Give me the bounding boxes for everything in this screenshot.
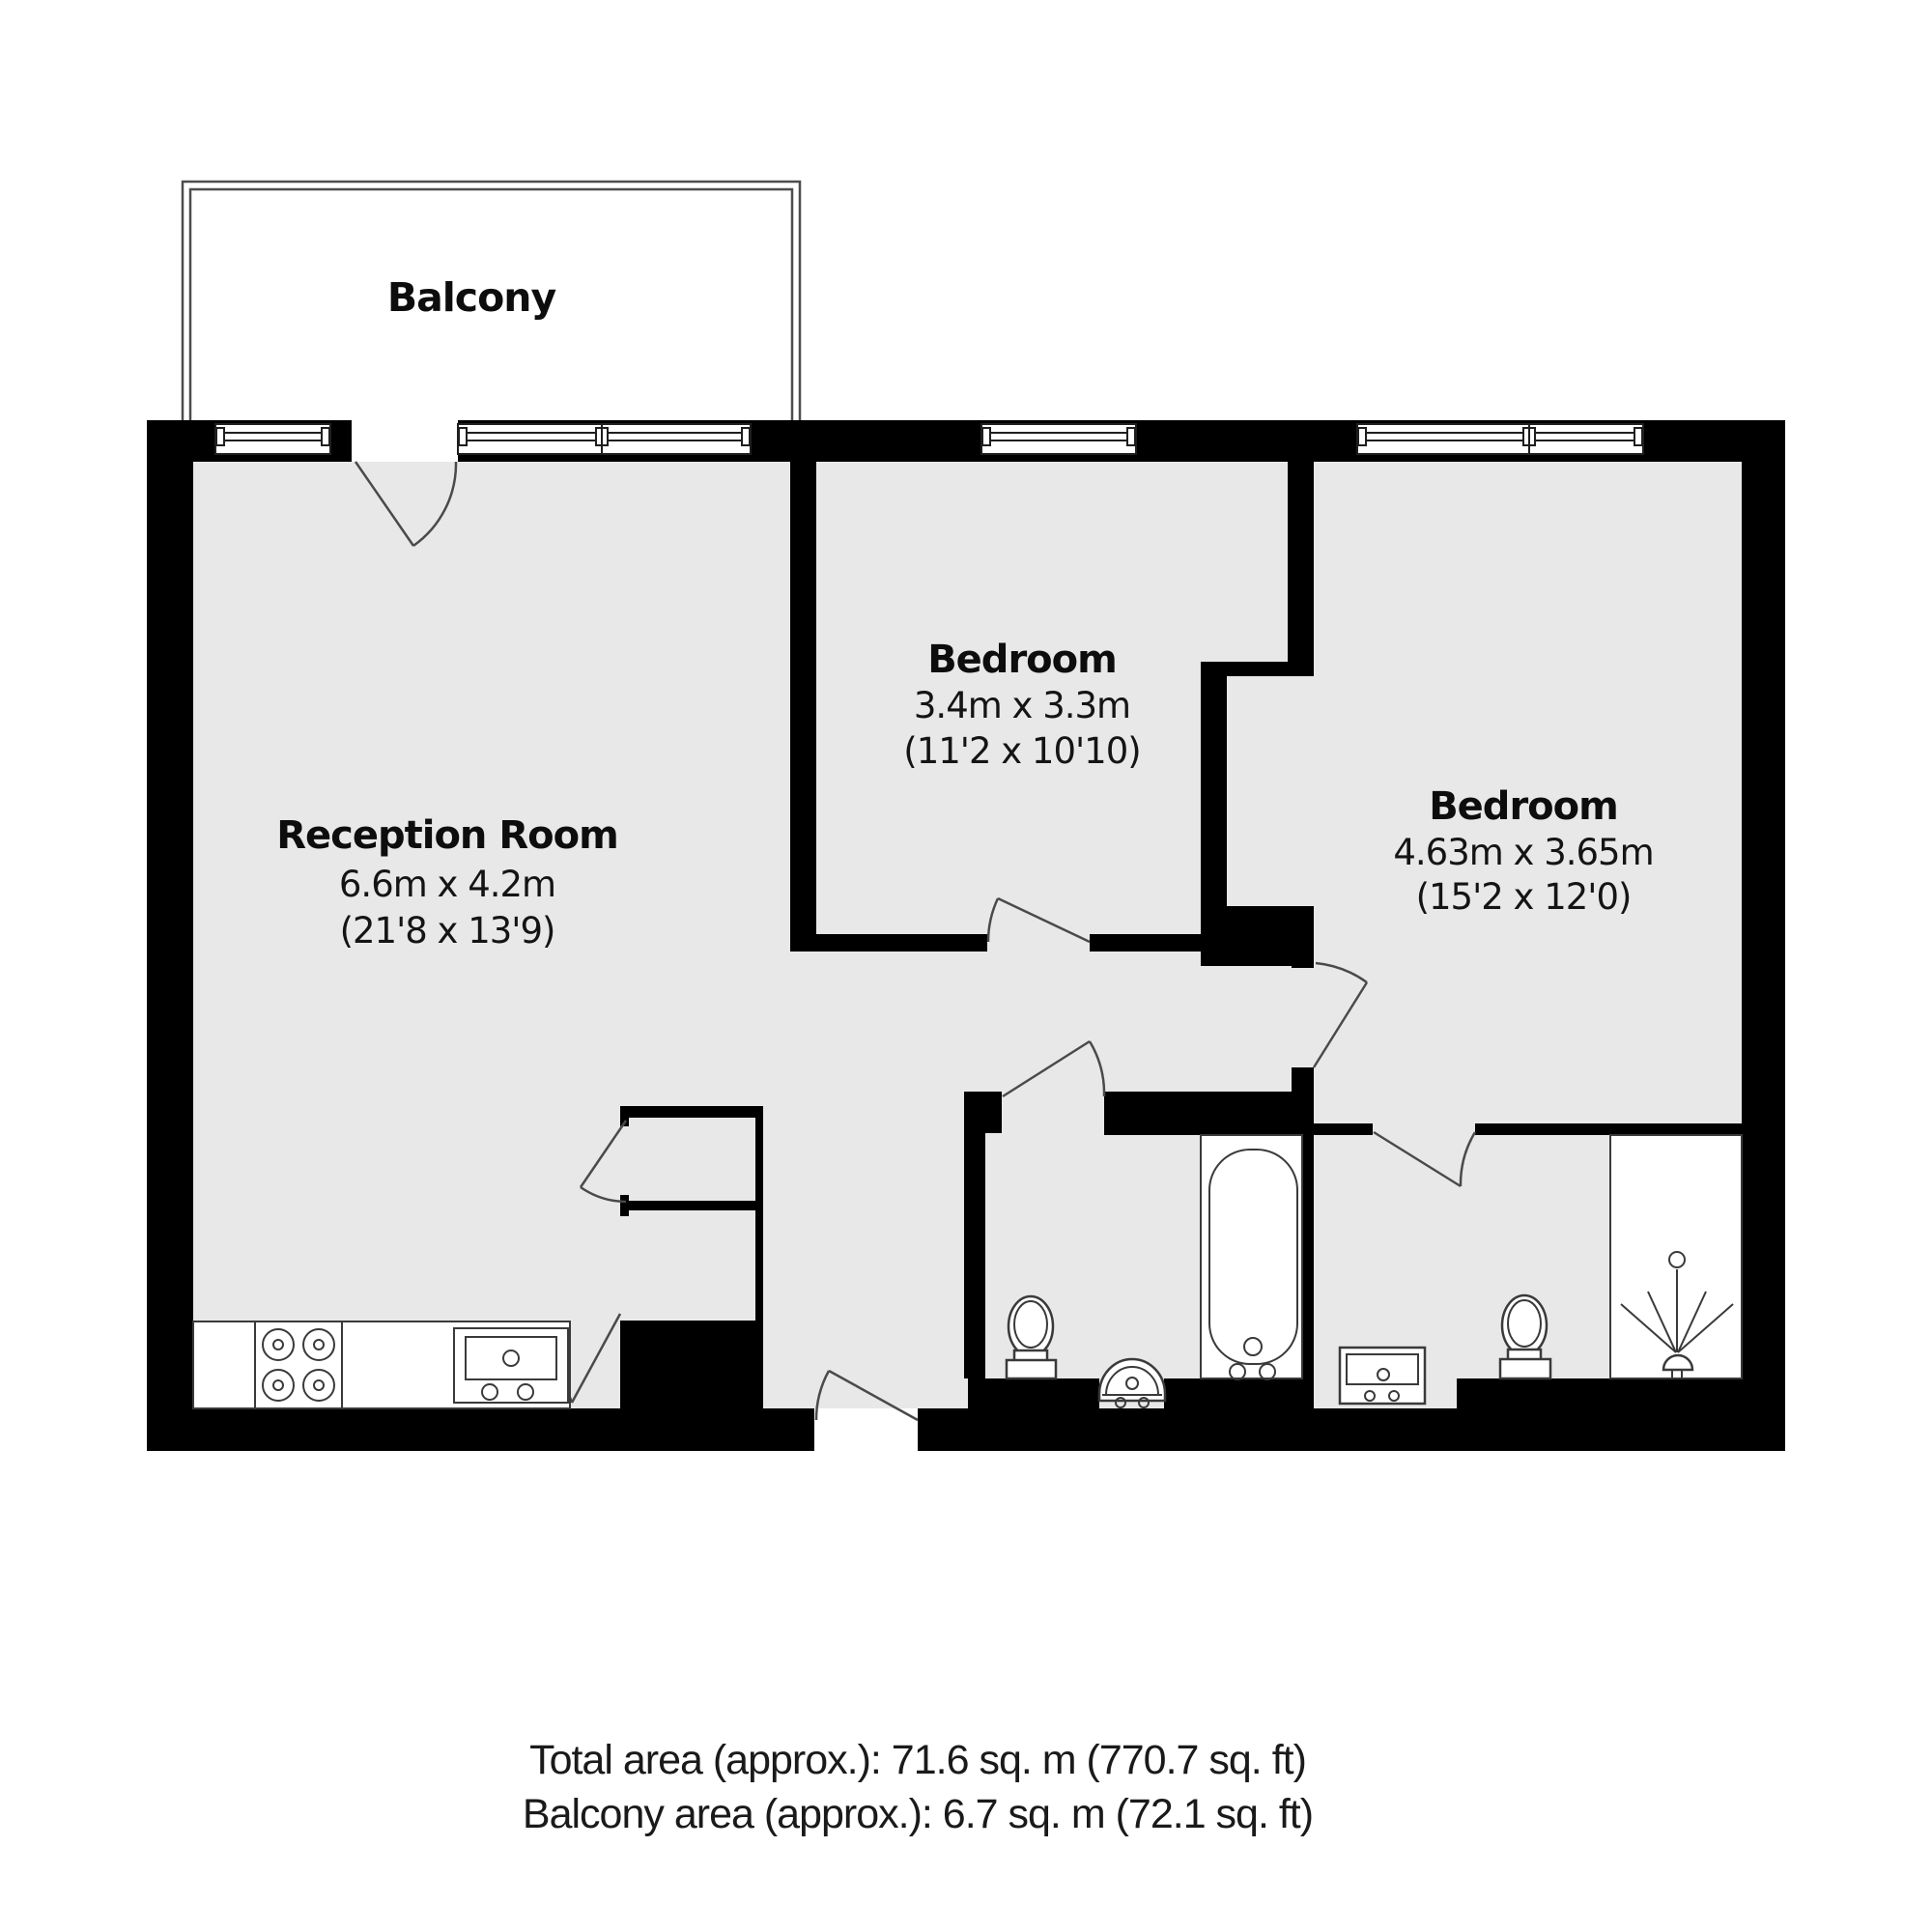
kitchen: [193, 1321, 570, 1408]
balcony-label: Balcony: [387, 274, 556, 321]
balcony-door-opening: [352, 420, 458, 462]
window-bedroom2: [1357, 424, 1643, 454]
wall-bathroom-divider: [1302, 1135, 1314, 1378]
room-label-bedroom2: Bedroom 4.63m x 3.65m (15'2 x 12'0): [1393, 784, 1653, 918]
footer: Total area (approx.): 71.6 sq. m (770.7 …: [523, 1737, 1313, 1837]
room-name: Bedroom: [927, 638, 1117, 682]
toilet-icon: [1007, 1296, 1056, 1378]
wall-closet-mid: [620, 1201, 763, 1210]
window-reception-left: [215, 424, 330, 454]
wall-bathroom1-north: [1104, 1092, 1314, 1135]
window-bedroom1: [981, 424, 1136, 454]
bathtub-zone: [1201, 1135, 1302, 1378]
wall-bottom-west: [147, 1408, 814, 1451]
wall-bedroom1-bedroom2: [1288, 462, 1314, 667]
room-dim-metric: 4.63m x 3.65m: [1393, 832, 1653, 873]
room-dim-metric: 3.4m x 3.3m: [914, 685, 1130, 726]
wall-bottom-east: [918, 1408, 1785, 1451]
room-dim-metric: 6.6m x 4.2m: [339, 864, 555, 905]
floorplan-svg: Balcony Reception Room 6.6m x 4.2m (21'8…: [0, 0, 1932, 1932]
room-label-bedroom1: Bedroom 3.4m x 3.3m (11'2 x 10'10): [903, 638, 1140, 772]
room-dim-imperial: (15'2 x 12'0): [1416, 876, 1632, 918]
room-name: Bedroom: [1429, 784, 1618, 829]
wall-right: [1742, 420, 1785, 1451]
toilet-icon: [1500, 1295, 1550, 1378]
window-reception-wide: [458, 424, 751, 454]
footer-balcony-area: Balcony area (approx.): 6.7 sq. m (72.1 …: [523, 1791, 1313, 1837]
room-dim-imperial: (11'2 x 10'10): [903, 730, 1140, 772]
wall-reception-bedroom1: [790, 462, 816, 950]
vanity-sink-icon: [1340, 1348, 1425, 1404]
room-name: Reception Room: [276, 813, 618, 858]
wall-bathroom1-west: [964, 1133, 985, 1378]
wall-left: [147, 420, 193, 1451]
footer-total-area: Total area (approx.): 71.6 sq. m (770.7 …: [529, 1737, 1306, 1783]
floorplan-page: Balcony Reception Room 6.6m x 4.2m (21'8…: [0, 0, 1932, 1932]
wall-bathroom2-north: [1475, 1123, 1742, 1135]
wall-closet-east: [755, 1118, 763, 1321]
wall-closet-top: [620, 1106, 763, 1118]
entrance-opening: [814, 1408, 918, 1451]
room-dim-imperial: (21'8 x 13'9): [340, 910, 555, 952]
